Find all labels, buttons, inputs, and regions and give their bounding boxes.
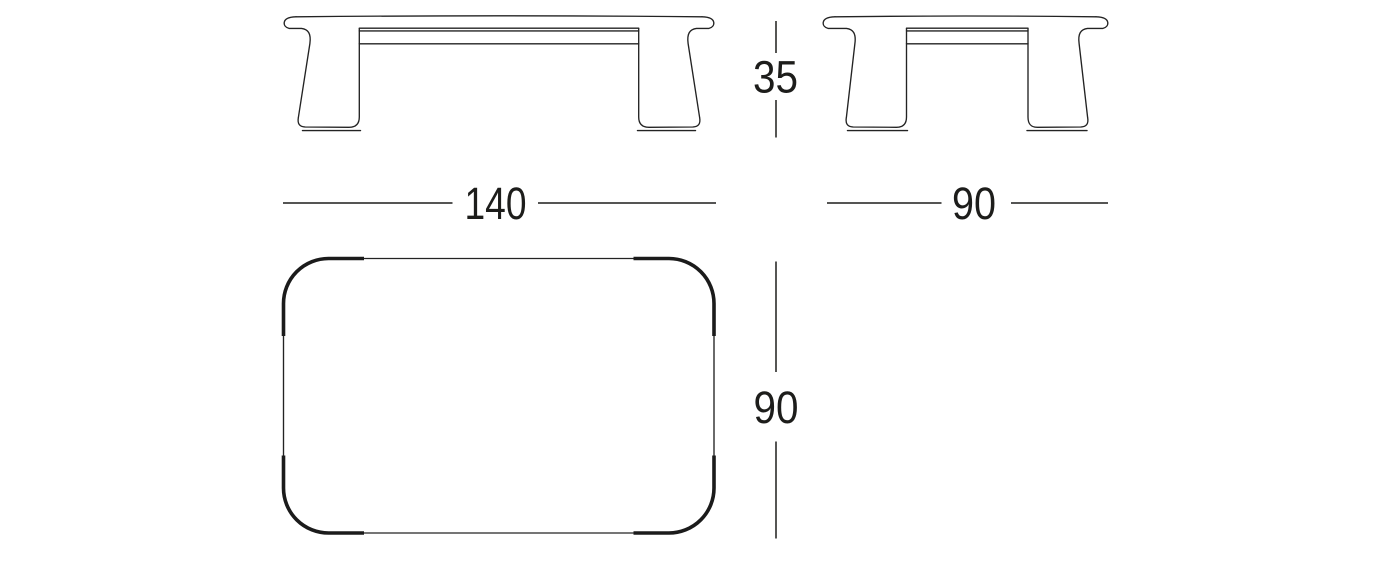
front-tabletop-top-edge bbox=[296, 16, 702, 17]
plan-leg-bottom-left bbox=[284, 456, 365, 534]
top-plan-view bbox=[284, 259, 715, 534]
depth-side-dim-value: 90 bbox=[952, 178, 996, 229]
dimension-depth-side: 90 bbox=[827, 178, 1108, 229]
side-elevation-view bbox=[823, 16, 1108, 131]
dimension-height: 35 bbox=[753, 21, 798, 138]
width-dim-value: 140 bbox=[465, 178, 527, 229]
dimension-depth-plan: 90 bbox=[754, 262, 799, 539]
plan-leg-top-right bbox=[634, 259, 715, 337]
dimension-width: 140 bbox=[283, 178, 716, 229]
plan-tabletop-outline bbox=[284, 259, 715, 534]
plan-leg-bottom-right bbox=[634, 456, 715, 534]
side-tabletop-top-edge bbox=[835, 16, 1096, 17]
table-dimension-drawing: 35 140 90 90 bbox=[0, 0, 1381, 561]
depth-plan-dim-value: 90 bbox=[754, 382, 799, 433]
plan-leg-top-left bbox=[284, 259, 365, 337]
front-elevation-view bbox=[284, 16, 714, 131]
side-right-leg bbox=[1028, 17, 1108, 128]
front-right-leg bbox=[639, 17, 714, 128]
side-left-leg bbox=[823, 17, 906, 128]
height-dim-value: 35 bbox=[753, 52, 798, 103]
front-left-leg bbox=[284, 17, 359, 128]
technical-drawing-canvas: 35 140 90 90 bbox=[0, 0, 1381, 561]
